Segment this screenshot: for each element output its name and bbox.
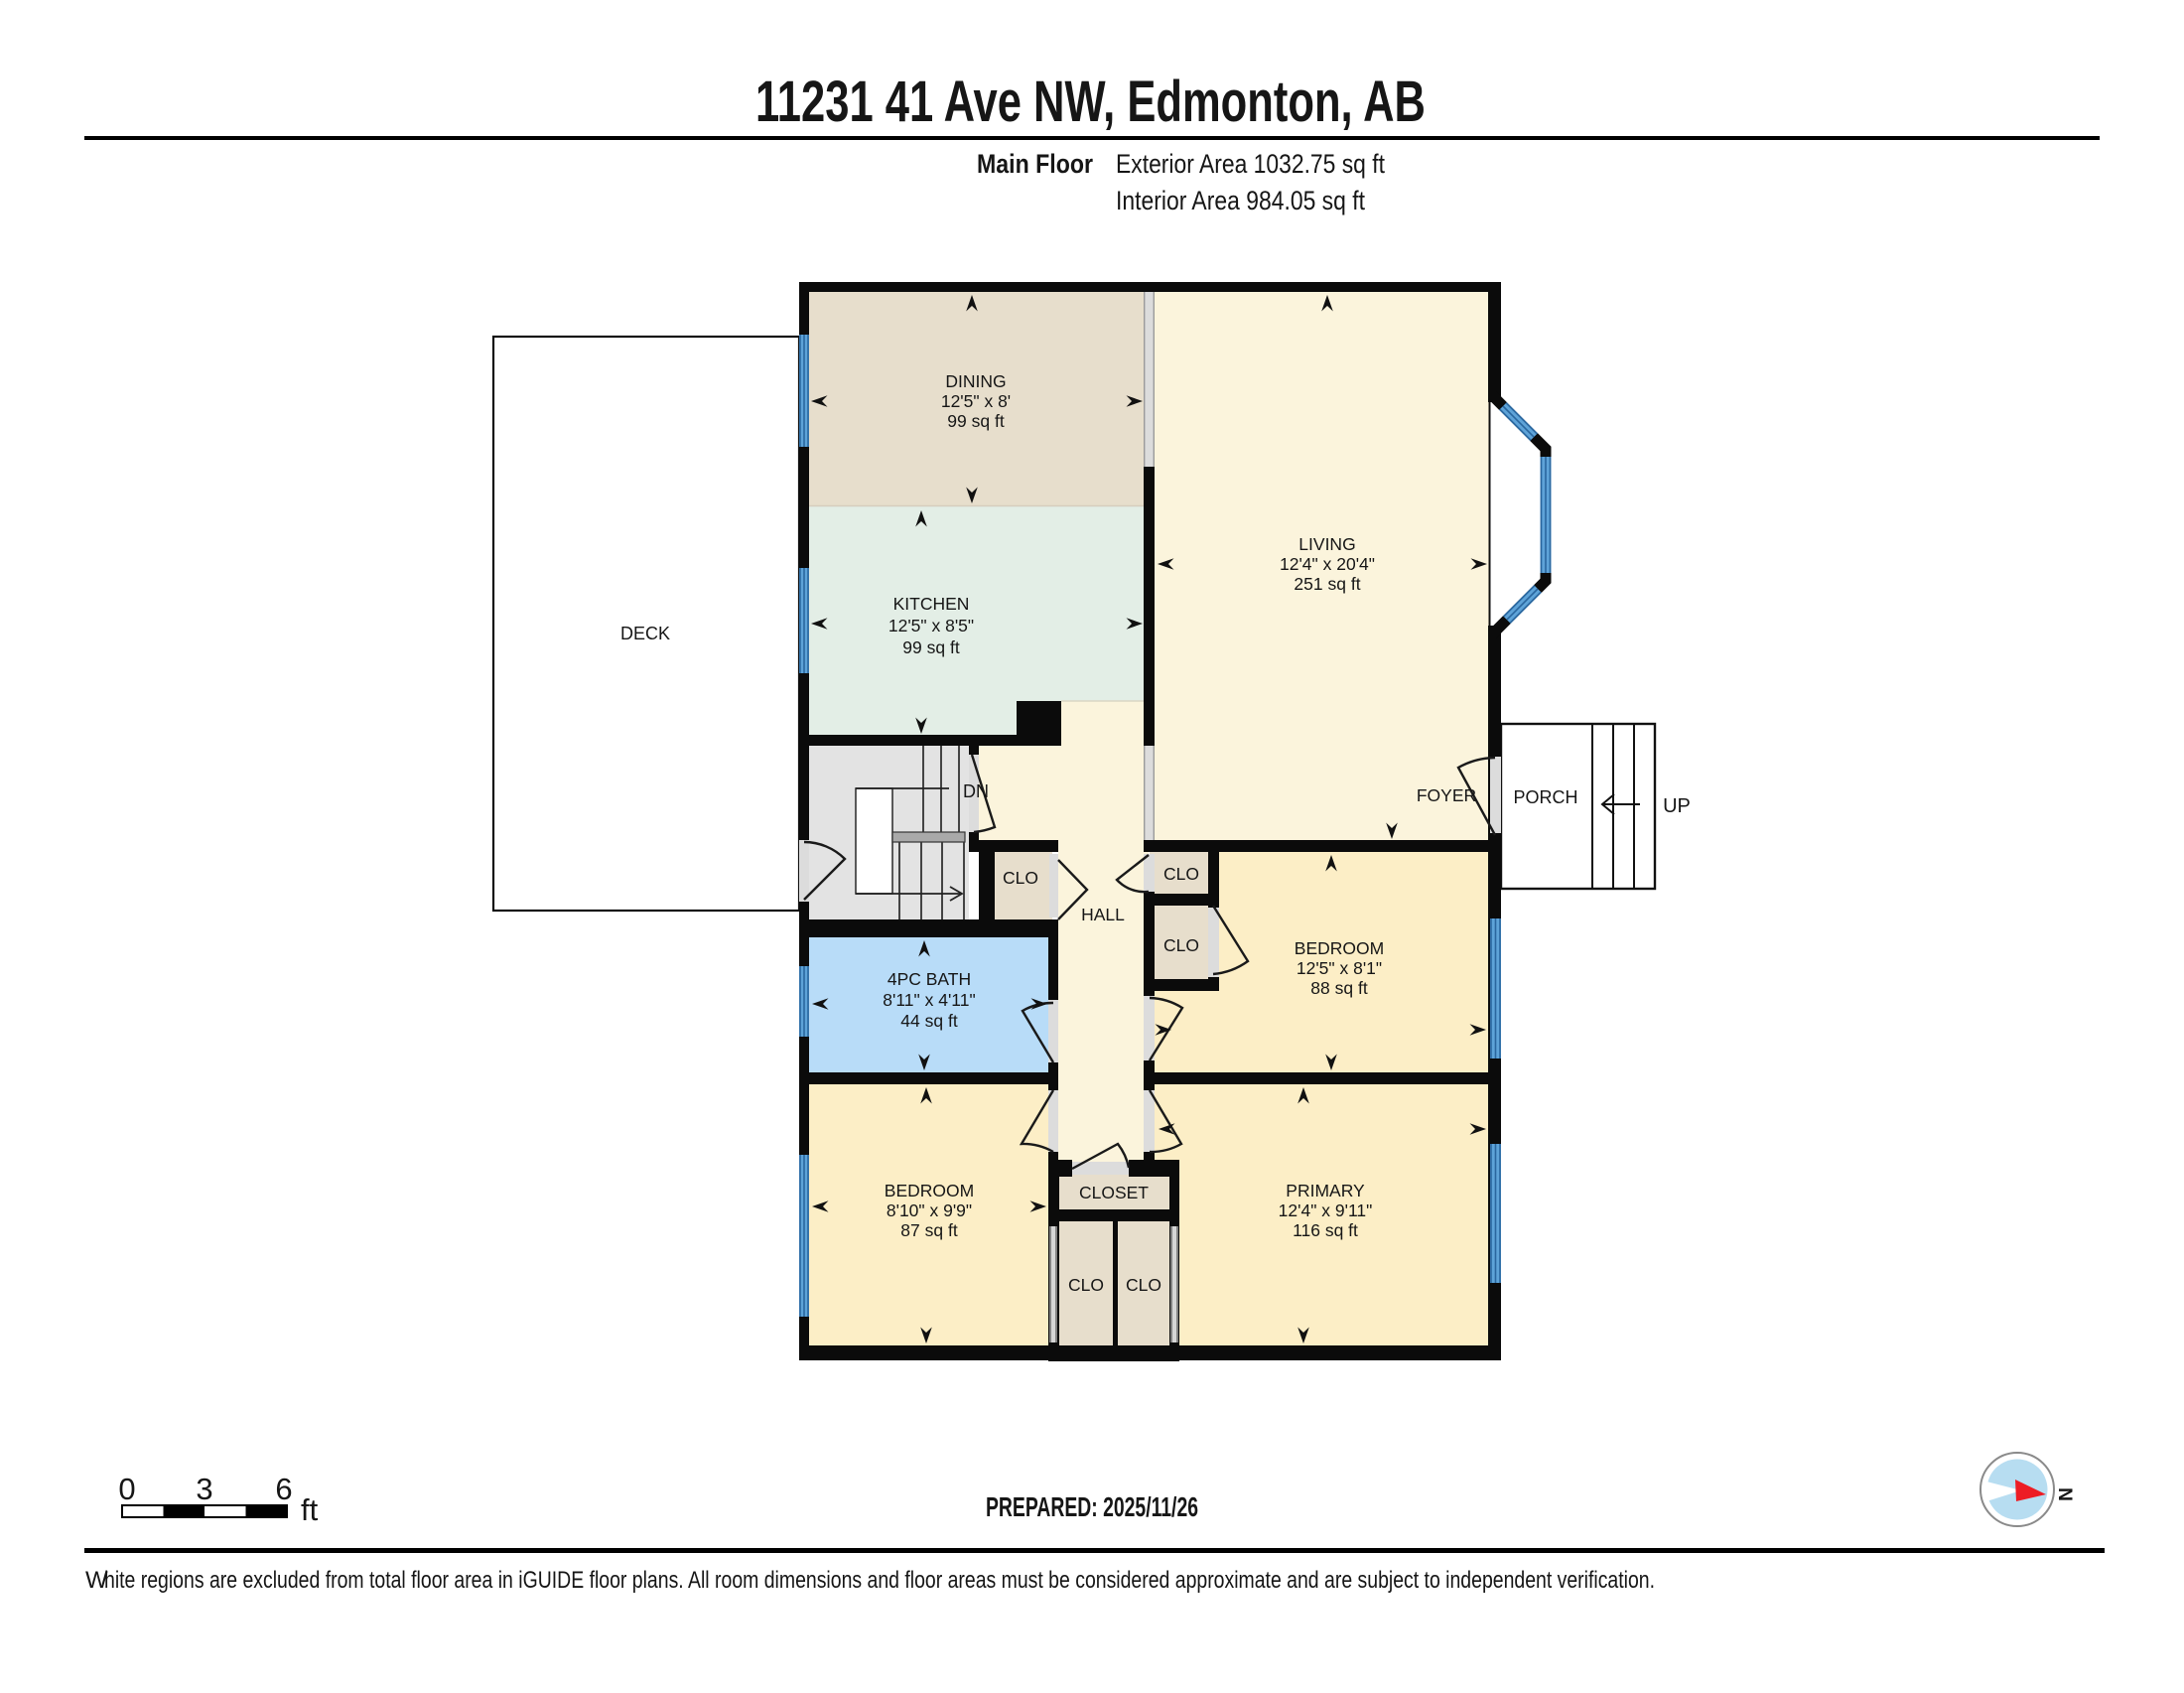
- svg-text:FOYER: FOYER: [1417, 785, 1476, 805]
- svg-text:4PC BATH: 4PC BATH: [887, 969, 971, 989]
- svg-text:44 sq ft: 44 sq ft: [900, 1011, 958, 1031]
- svg-text:CLO: CLO: [1126, 1275, 1161, 1295]
- svg-text:8'11" x 4'11": 8'11" x 4'11": [883, 990, 975, 1010]
- svg-text:DINING: DINING: [945, 371, 1006, 391]
- svg-text:CLO: CLO: [1163, 935, 1199, 955]
- svg-text:LIVING: LIVING: [1298, 534, 1355, 554]
- svg-text:HALL: HALL: [1081, 905, 1125, 924]
- svg-text:PORCH: PORCH: [1513, 787, 1577, 807]
- svg-text:CLO: CLO: [1068, 1275, 1104, 1295]
- svg-text:BEDROOM: BEDROOM: [1295, 938, 1384, 958]
- svg-text:KITCHEN: KITCHEN: [893, 594, 970, 614]
- svg-text:88 sq ft: 88 sq ft: [1310, 978, 1368, 998]
- svg-text:Main Floor: Main Floor: [977, 149, 1093, 179]
- svg-text:DN: DN: [963, 781, 989, 801]
- svg-text:Interior Area 984.05 sq ft: Interior Area 984.05 sq ft: [1116, 186, 1365, 215]
- svg-text:12'4" x 9'11": 12'4" x 9'11": [1279, 1200, 1373, 1220]
- svg-text:11231 41 Ave NW, Edmonton, AB: 11231 41 Ave NW, Edmonton, AB: [755, 70, 1426, 134]
- svg-text:12'5" x 8': 12'5" x 8': [941, 391, 1011, 411]
- svg-text:CLO: CLO: [1163, 864, 1199, 884]
- svg-text:8'10" x 9'9": 8'10" x 9'9": [887, 1200, 972, 1220]
- svg-text:87 sq ft: 87 sq ft: [900, 1220, 958, 1240]
- svg-text:12'4" x 20'4": 12'4" x 20'4": [1280, 554, 1375, 574]
- svg-text:PRIMARY: PRIMARY: [1286, 1181, 1365, 1200]
- svg-text:hite regions are excluded from: hite regions are excluded from total flo…: [104, 1567, 1655, 1594]
- svg-text:BEDROOM: BEDROOM: [885, 1181, 974, 1200]
- svg-text:N: N: [2054, 1487, 2075, 1501]
- svg-text:Exterior Area 1032.75 sq ft: Exterior Area 1032.75 sq ft: [1116, 149, 1385, 179]
- svg-text:3: 3: [196, 1472, 212, 1506]
- svg-text:12'5" x 8'1": 12'5" x 8'1": [1297, 958, 1382, 978]
- svg-text:116 sq ft: 116 sq ft: [1293, 1220, 1358, 1240]
- svg-text:251 sq ft: 251 sq ft: [1294, 574, 1360, 594]
- svg-text:PREPARED: 2025/11/26: PREPARED: 2025/11/26: [986, 1491, 1198, 1522]
- svg-text:12'5" x 8'5": 12'5" x 8'5": [888, 616, 974, 635]
- svg-text:99 sq ft: 99 sq ft: [902, 637, 960, 657]
- svg-text:6: 6: [275, 1472, 292, 1506]
- svg-text:0: 0: [118, 1472, 135, 1506]
- svg-text:99 sq ft: 99 sq ft: [947, 411, 1005, 431]
- svg-text:UP: UP: [1663, 795, 1691, 817]
- svg-text:CLOSET: CLOSET: [1079, 1183, 1149, 1202]
- svg-text:CLO: CLO: [1003, 868, 1038, 888]
- svg-text:ft: ft: [301, 1492, 319, 1527]
- svg-text:DECK: DECK: [620, 624, 670, 643]
